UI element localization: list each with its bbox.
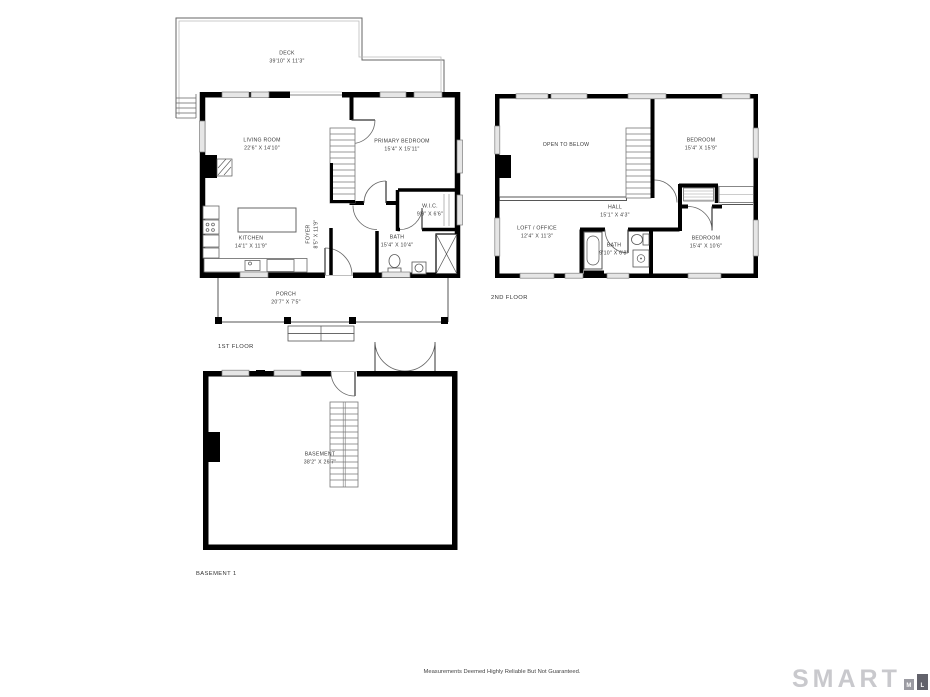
mls-block-l: L — [917, 674, 928, 690]
room-label-porch: PORCH 20'7" X 7'5" — [271, 291, 300, 306]
kitchen-sink — [245, 261, 260, 271]
porch-post — [284, 317, 291, 324]
floor-plan-page: DECK 39'10" X 11'3" LIVING ROOM 22'6" X … — [0, 0, 930, 697]
room-label-loft-office: LOFT / OFFICE 12'4" X 11'3" — [517, 225, 557, 240]
floor-title-2nd: 2ND FLOOR — [491, 295, 528, 301]
stove — [267, 260, 294, 272]
disclaimer-text: Measurements Deemed Highly Reliable But … — [402, 669, 602, 675]
room-label-bath-1st: BATH 15'4" X 10'4" — [381, 234, 414, 249]
porch-post — [441, 317, 448, 324]
porch-outline — [215, 278, 448, 341]
room-label-bedroom-bottom: BEDROOM 15'4" X 10'6" — [690, 235, 723, 250]
room-label-living-room: LIVING ROOM 22'6" X 14'10" — [243, 137, 280, 152]
toilet — [389, 255, 400, 268]
floor-plan-drawing — [0, 0, 930, 697]
room-label-primary-bedroom: PRIMARY BEDROOM 15'4" X 15'11" — [374, 138, 429, 153]
stairs-first-floor — [330, 128, 355, 203]
porch-post — [215, 317, 222, 324]
toilet — [632, 235, 643, 245]
chimney — [205, 432, 221, 462]
floor-title-1st: 1ST FLOOR — [218, 344, 254, 350]
toilet-tank — [643, 234, 649, 245]
railing — [500, 197, 627, 201]
stairs-basement — [330, 402, 358, 487]
mls-block-m: M — [904, 679, 914, 690]
smart-logo-text: SMART — [792, 668, 901, 691]
room-label-bath-2nd: BATH 9'10" X 6'8" — [599, 242, 628, 257]
porch-steps — [288, 326, 354, 341]
chimney — [497, 155, 511, 178]
smartmls-logo: SMART M L S — [792, 664, 930, 690]
room-label-deck: DECK 39'10" X 11'3" — [269, 50, 304, 65]
room-label-hall: HALL 15'1" X 4'3" — [600, 204, 629, 219]
room-label-wic: W.I.C. 9'9" X 6'6" — [417, 203, 443, 218]
room-label-kitchen: KITCHEN 14'1" X 11'9" — [235, 235, 267, 250]
french-doors — [375, 342, 435, 371]
room-label-foyer: FOYER 8'5" X 11'9" — [305, 219, 320, 248]
floor-title-basement: BASEMENT 1 — [196, 571, 237, 577]
kitchen-island — [238, 208, 296, 232]
room-label-open-to-below: OPEN TO BELOW — [543, 142, 590, 150]
room-label-bedroom-top: BEDROOM 15'4" X 15'9" — [685, 137, 718, 152]
porch-post — [349, 317, 356, 324]
room-label-basement: BASEMENT 38'2" X 26'7" — [304, 451, 337, 466]
